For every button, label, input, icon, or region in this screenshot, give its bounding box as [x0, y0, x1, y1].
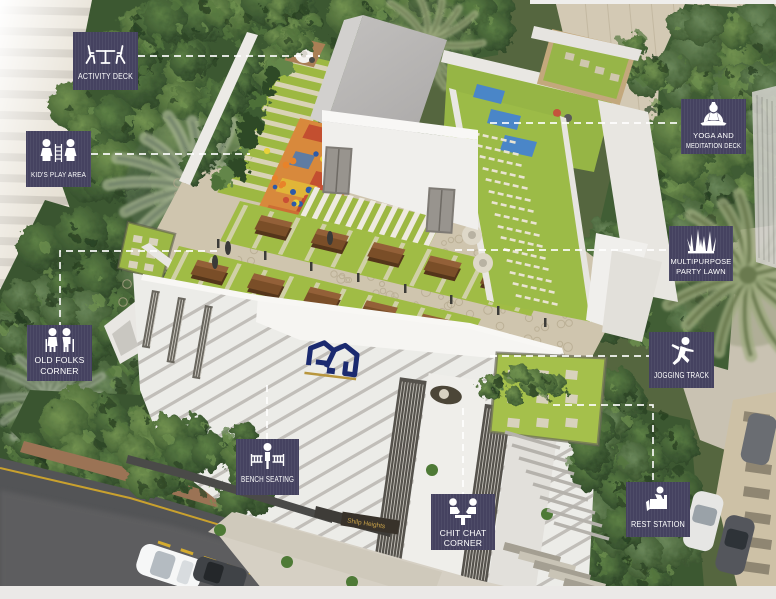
svg-text:CHIT CHAT: CHIT CHAT	[440, 528, 487, 538]
svg-text:REST STATION: REST STATION	[631, 519, 685, 529]
svg-text:JOGGING TRACK: JOGGING TRACK	[654, 371, 709, 380]
svg-text:YOGA AND: YOGA AND	[693, 131, 734, 140]
svg-text:BENCH SEATING: BENCH SEATING	[241, 475, 294, 484]
svg-text:PARTY LAWN: PARTY LAWN	[676, 267, 726, 276]
svg-text:ACTIVITY DECK: ACTIVITY DECK	[78, 71, 133, 81]
svg-text:CORNER: CORNER	[40, 366, 78, 376]
svg-text:MEDITATION DECK: MEDITATION DECK	[686, 141, 741, 150]
svg-text:CORNER: CORNER	[444, 538, 482, 548]
svg-text:KID'S PLAY AREA: KID'S PLAY AREA	[31, 170, 87, 179]
svg-text:MULTIPURPOSE: MULTIPURPOSE	[670, 257, 731, 266]
svg-text:OLD FOLKS: OLD FOLKS	[34, 355, 84, 365]
